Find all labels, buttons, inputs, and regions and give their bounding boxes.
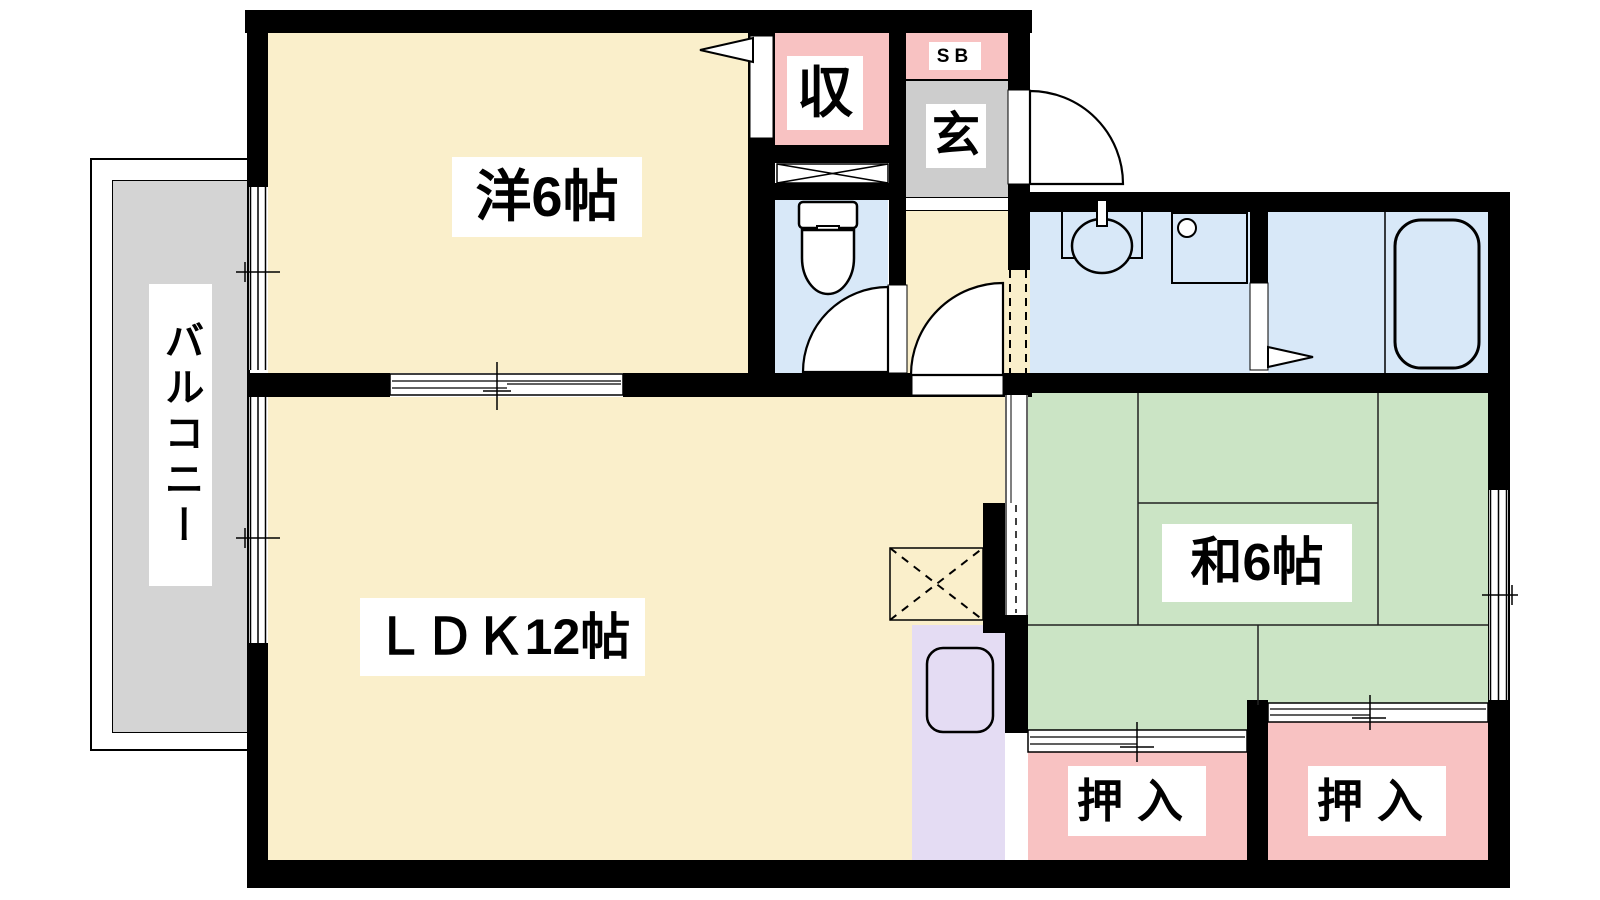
window-japanese-icon — [1482, 490, 1518, 700]
bathtub-icon — [1385, 212, 1479, 373]
counter-x-icon — [890, 548, 983, 620]
window-ldk-icon — [236, 397, 280, 643]
western-door-icon — [700, 36, 773, 138]
label-oshiire-left: 押入 — [1068, 766, 1206, 836]
kitchen-sink-icon — [927, 648, 993, 732]
oshiire-left-fusuma-icon — [1028, 722, 1247, 762]
fusuma-japanese-icon — [1005, 395, 1028, 615]
sink-icon — [1062, 200, 1142, 273]
toilet-door-icon — [803, 285, 907, 373]
window-western-icon — [236, 187, 280, 370]
toilet-icon — [799, 202, 857, 294]
bathroom-door-icon — [1250, 283, 1313, 370]
label-balcony: バルコニー — [149, 284, 212, 586]
label-japanese-room: 和6帖 — [1162, 524, 1352, 602]
label-ldk: ＬＤＫ12帖 — [360, 598, 645, 676]
label-oshiire-right: 押入 — [1308, 766, 1446, 836]
oshiire-right-fusuma-icon — [1268, 695, 1488, 730]
washing-machine-pan-icon — [1172, 213, 1247, 283]
sliding-door-western-ldk-icon — [390, 362, 623, 410]
label-western-room: 洋6帖 — [452, 157, 642, 237]
entrance-door-icon — [1008, 90, 1123, 184]
label-shoe-box: SB — [929, 42, 981, 70]
floor-plan: 洋6帖 ＬＤＫ12帖 和6帖 バルコニー 収 SB 玄 押入 押入 — [0, 0, 1600, 900]
label-genkan: 玄 — [926, 104, 986, 168]
open-doorway-washroom-icon — [1008, 270, 1030, 373]
hallway-door-icon — [911, 283, 1003, 395]
plan-symbols — [0, 0, 1600, 900]
shelf-icon — [777, 164, 888, 183]
label-closet: 収 — [787, 56, 863, 130]
